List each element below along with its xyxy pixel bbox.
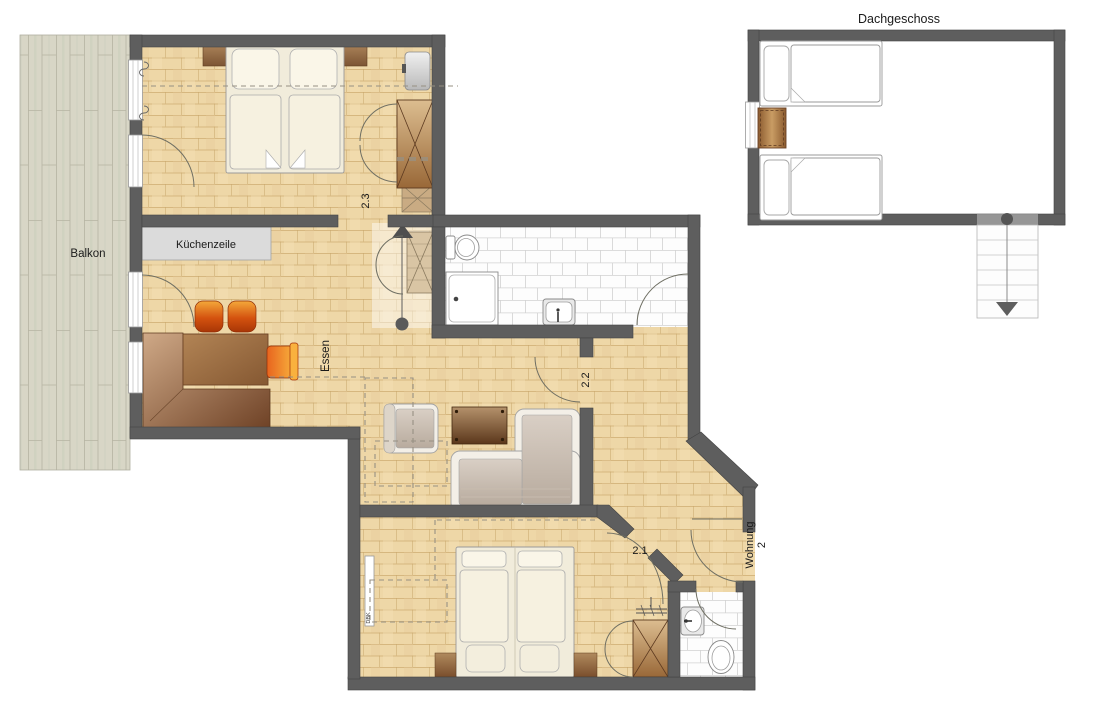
- radiator: [402, 52, 430, 90]
- dining-chair: [267, 343, 298, 380]
- sink: [543, 299, 575, 325]
- attic-title: Dachgeschoss: [858, 12, 940, 26]
- double-bed: [456, 547, 574, 677]
- apartment-label-line2: 2: [756, 542, 768, 548]
- dining-label: Essen: [320, 340, 332, 372]
- window: [129, 342, 143, 393]
- kitchen-label: Küchenzeile: [176, 239, 236, 251]
- toilet: [708, 641, 734, 674]
- wardrobe: [397, 100, 433, 188]
- bedside-board: [435, 653, 456, 677]
- toilet: [446, 235, 479, 260]
- balcony-label: Balkon: [70, 248, 105, 260]
- bedside-board: [574, 653, 597, 677]
- dresser: [758, 108, 786, 148]
- room-label-2-2: 2.2: [580, 372, 592, 387]
- armchair: [384, 404, 438, 453]
- radiator-tag: DBK: [366, 612, 372, 624]
- balcony-door: [129, 135, 143, 187]
- double-bed: [226, 44, 344, 173]
- single-bed: [760, 41, 882, 106]
- dining-table: [183, 334, 268, 385]
- shower: [446, 272, 498, 325]
- attic-plan: Dachgeschoss: [746, 12, 1066, 318]
- floor-plan-page: Balkon Küchenzeile Essen 2.3 2.2 2.1 Woh…: [0, 0, 1100, 724]
- balcony-door: [129, 272, 143, 327]
- room-label-2-3: 2.3: [360, 193, 372, 208]
- room-label-2-1: 2.1: [632, 545, 647, 557]
- floor-plan-drawing: Balkon Küchenzeile Essen 2.3 2.2 2.1 Woh…: [0, 0, 1100, 724]
- coffee-table: [452, 407, 507, 444]
- stool: [228, 301, 256, 332]
- stool: [195, 301, 223, 332]
- stairs-down: [977, 213, 1038, 318]
- window: [129, 60, 143, 120]
- wardrobe: [633, 620, 668, 677]
- apartment-label-line1: Wohnung: [744, 522, 756, 569]
- single-bed: [760, 155, 882, 220]
- window: [746, 102, 760, 148]
- sink: [681, 607, 704, 635]
